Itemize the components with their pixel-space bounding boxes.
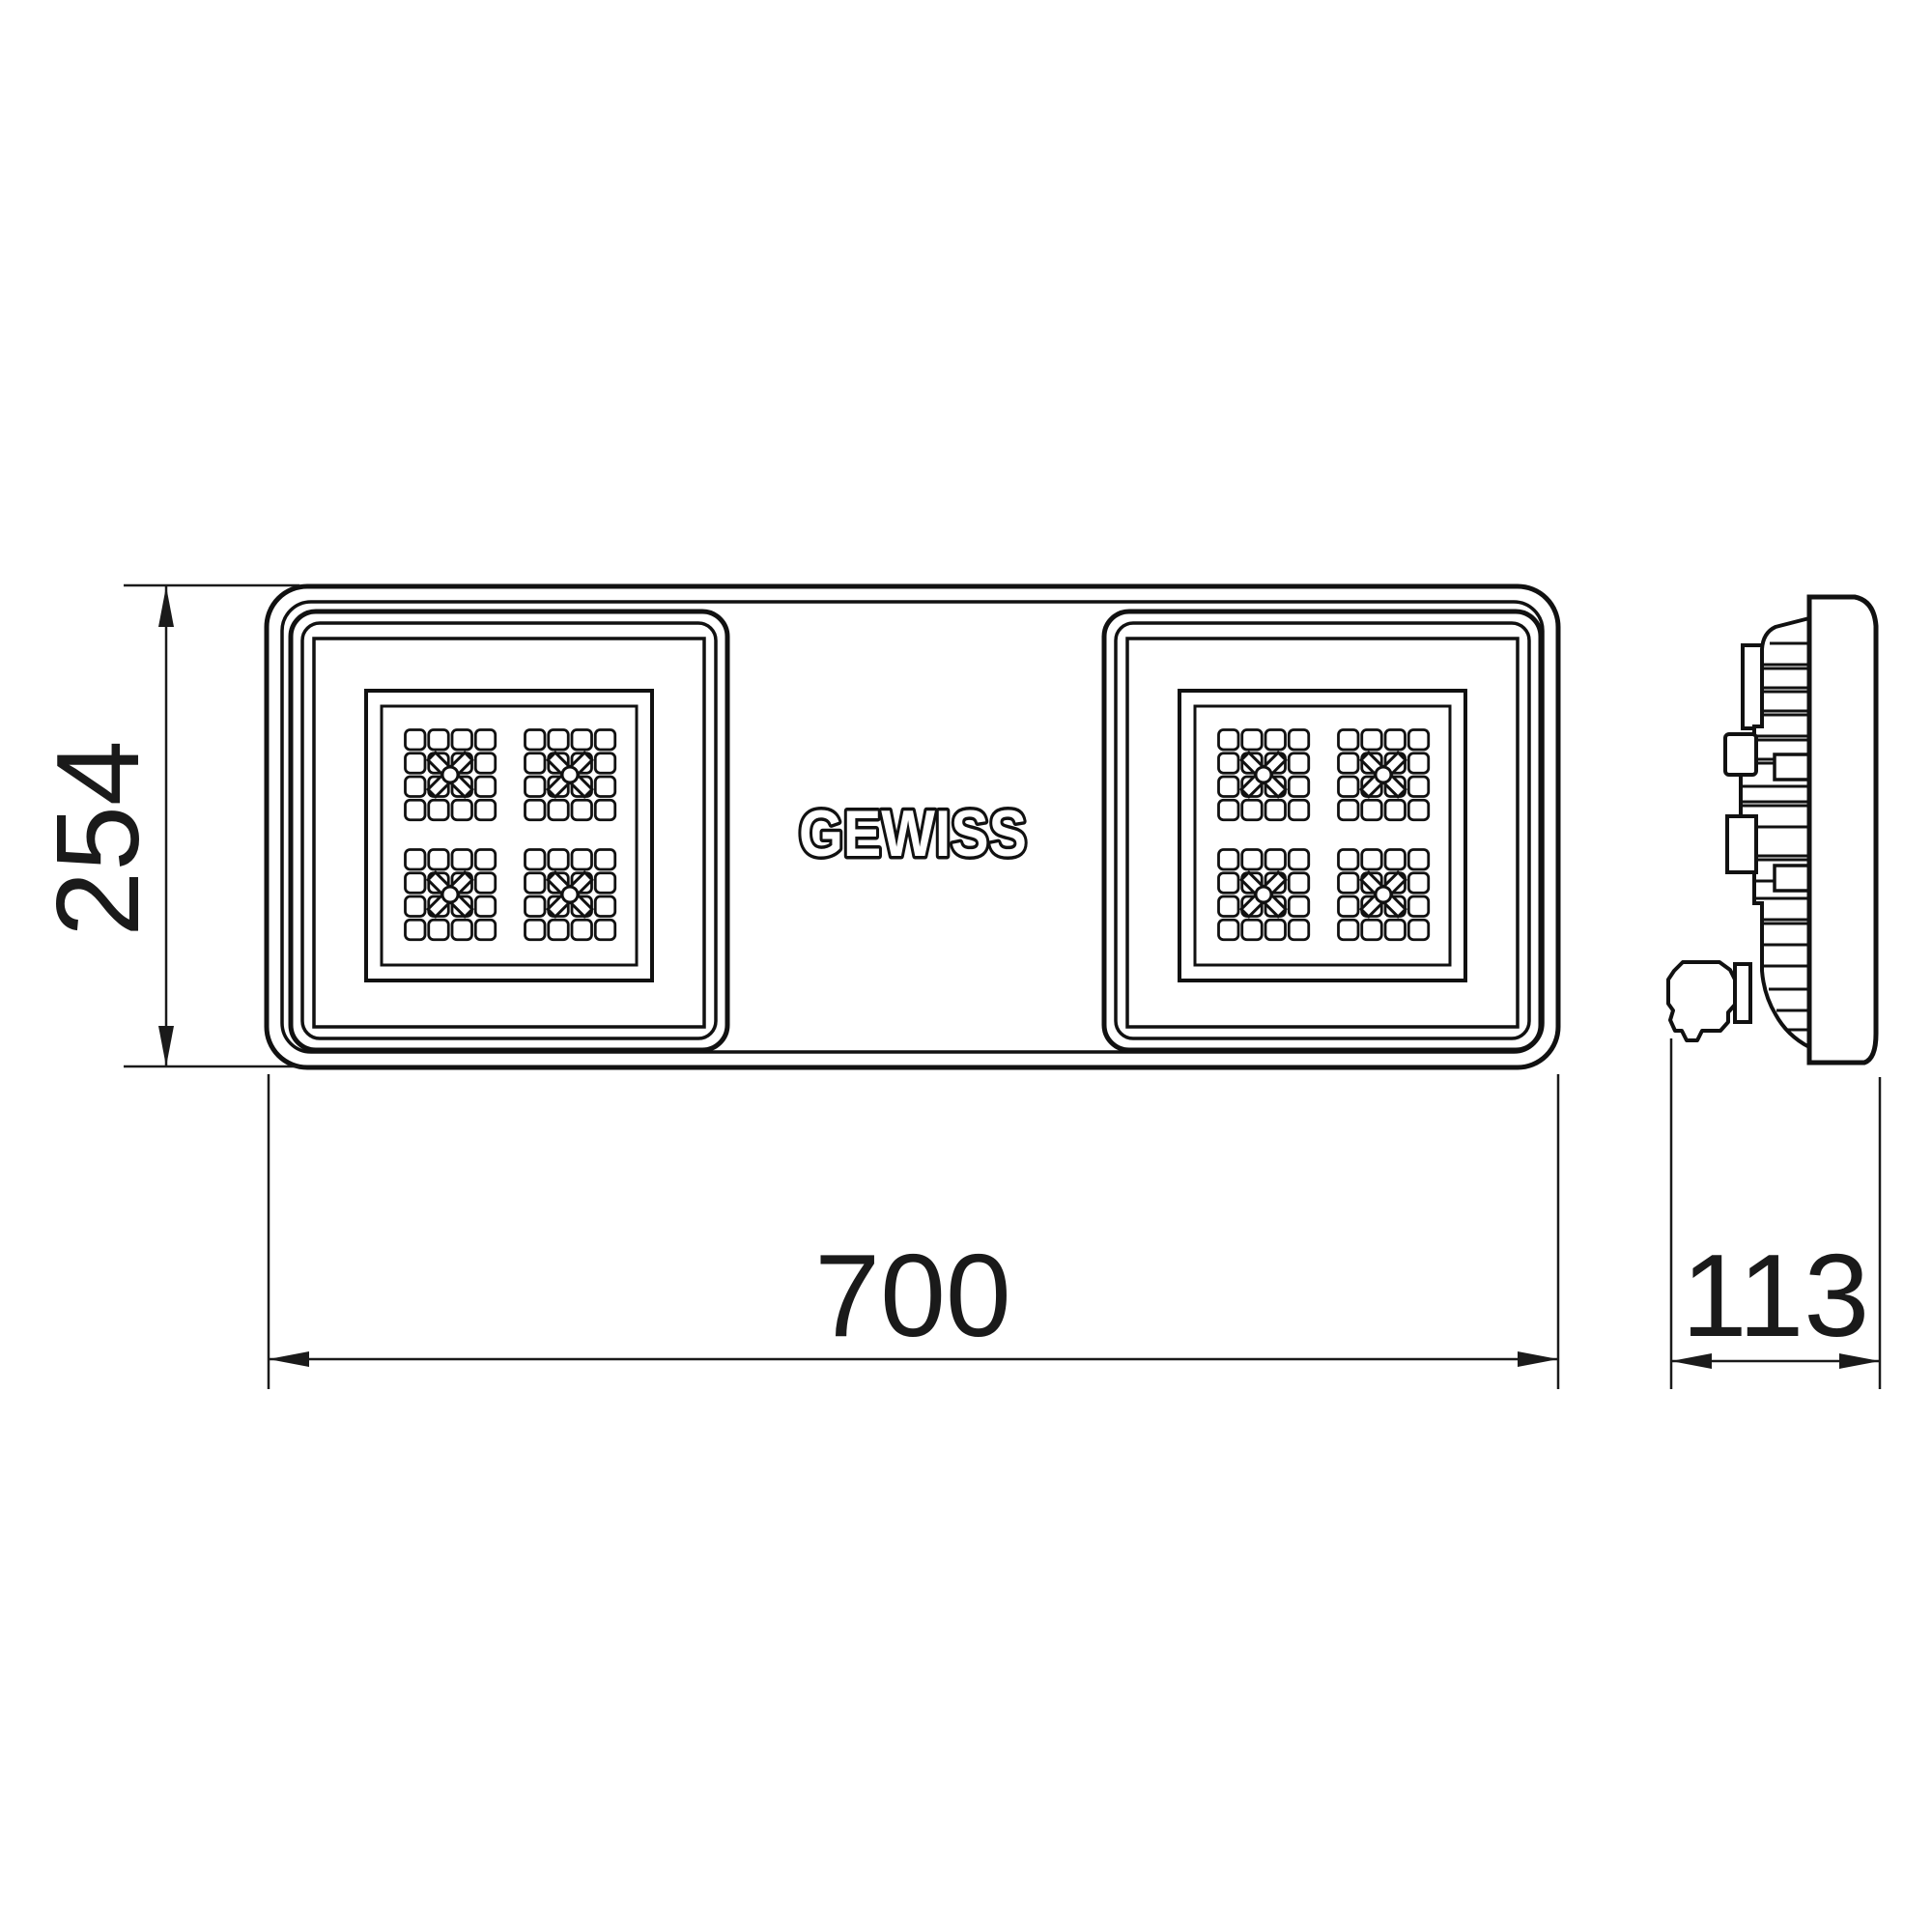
front-view: GEWISS GEWISS: [267, 586, 1558, 1067]
front-face-profile: [1809, 597, 1876, 1063]
cable-gland: [1668, 962, 1735, 1040]
floodlight-dimension-drawing: GEWISS GEWISS 254: [0, 0, 1932, 1932]
brand-logo: GEWISS GEWISS: [799, 797, 1027, 870]
dimension-width: 700: [269, 1074, 1558, 1389]
cable-gland-connector: [1735, 964, 1750, 1022]
heatsink-step-upper: [1775, 754, 1809, 780]
heatsink-step-lower: [1775, 866, 1809, 891]
arrowhead-right-icon: [1518, 1351, 1558, 1367]
dimension-height: 254: [32, 585, 299, 1066]
arrowhead-down-icon: [158, 1026, 174, 1066]
arrowhead-up-icon: [158, 586, 174, 627]
led-module-right: [1104, 611, 1541, 1050]
technical-drawing-page: GEWISS GEWISS 254: [0, 0, 1932, 1932]
side-view: [1668, 597, 1876, 1063]
mounting-clip-lower: [1727, 816, 1756, 872]
led-module-left: [291, 611, 727, 1050]
width-dimension-label: 700: [814, 1230, 1011, 1361]
depth-dimension-label: 113: [1682, 1230, 1870, 1361]
height-dimension-label: 254: [32, 740, 163, 937]
brand-logo-text: GEWISS: [799, 797, 1027, 870]
arrowhead-left-icon: [269, 1351, 309, 1367]
dimension-depth: 113: [1671, 1038, 1880, 1389]
mounting-clip-upper: [1725, 734, 1756, 775]
